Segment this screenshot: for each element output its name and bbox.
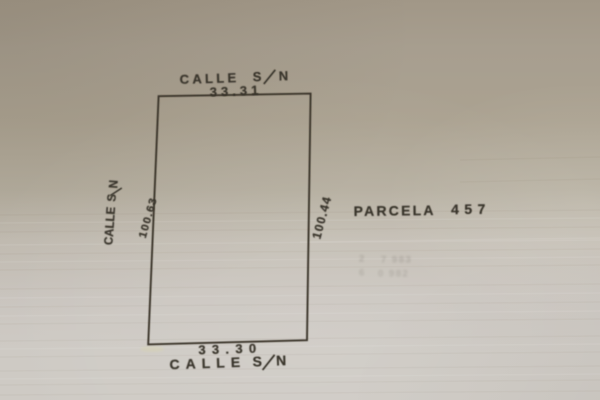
svg-text:N: N [279,68,289,83]
svg-text:PARCELA: PARCELA [354,202,436,219]
svg-text:33.31: 33.31 [209,83,262,100]
svg-text:N: N [108,180,121,189]
svg-text:6: 6 [359,268,364,279]
svg-text:0 982: 0 982 [378,269,409,280]
svg-text:N: N [276,352,287,368]
svg-text:2: 2 [359,254,364,265]
svg-text:457: 457 [451,201,491,217]
svg-text:CALLE: CALLE [169,354,246,373]
svg-text:7 983: 7 983 [381,255,412,266]
svg-text:S: S [252,353,262,369]
